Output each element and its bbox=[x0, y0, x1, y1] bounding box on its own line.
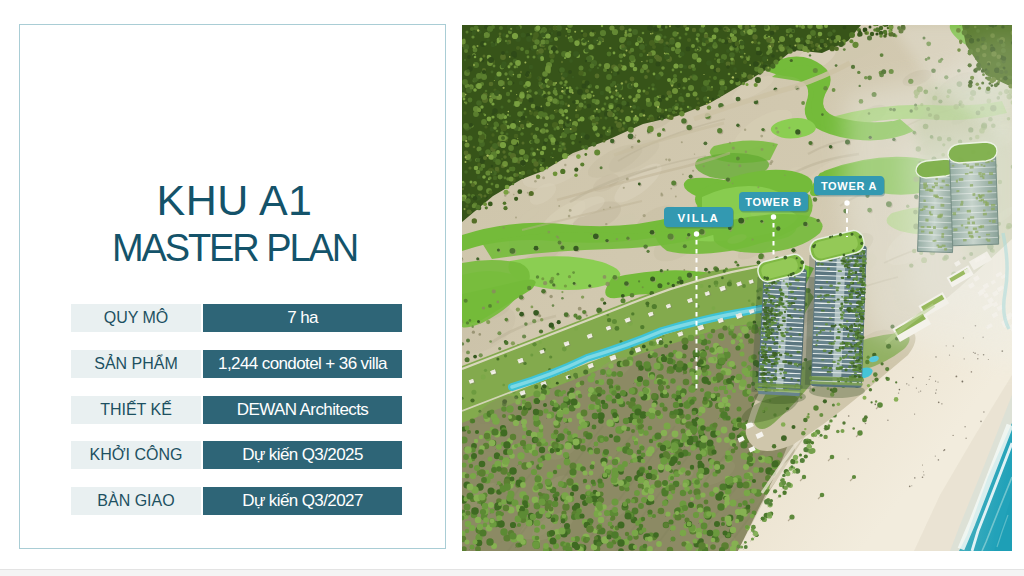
svg-text:TOWER A: TOWER A bbox=[821, 180, 877, 192]
svg-text:VILLA: VILLA bbox=[677, 212, 719, 224]
svg-text:TOWER B: TOWER B bbox=[745, 196, 802, 208]
